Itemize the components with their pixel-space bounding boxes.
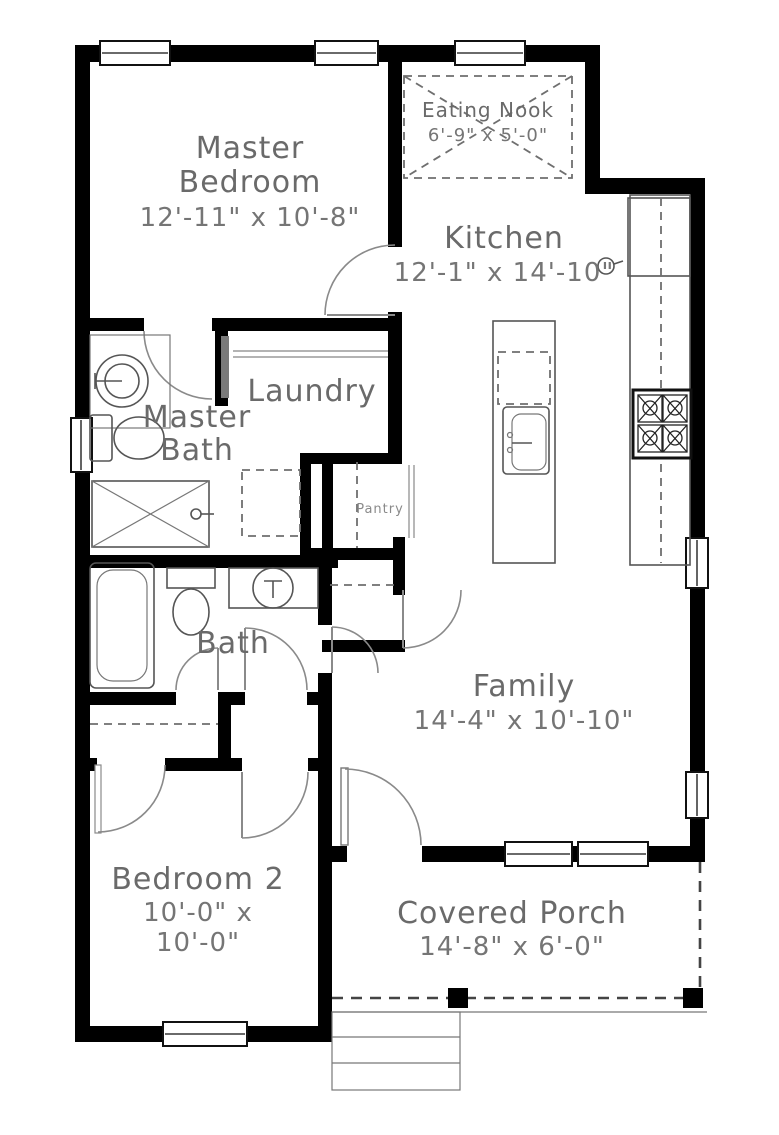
laundry-label: Laundry [247,374,376,409]
window [505,842,572,866]
master-bath-label: Master [143,400,251,435]
laundry-pocket-door [221,336,229,398]
room-labels: Master Bedroom 12'-11" x 10'-8" Eating N… [111,98,634,962]
master-bedroom-label-2: Bedroom [179,165,322,200]
kitchen-label: Kitchen [444,221,564,256]
kitchen-dims: 12'-1" x 14'-10" [394,258,615,288]
family-dims: 14'-4" x 10'-10" [414,706,635,736]
master-bedroom-label: Master [196,131,304,166]
porch-steps [332,1012,460,1090]
kitchen-island [493,321,555,563]
covered-porch-dims: 14'-8" x 6'-0" [419,932,605,962]
window [686,772,708,818]
bedroom2-closet-door [95,765,165,833]
bedroom2-entry-door [242,772,308,838]
family-label: Family [473,669,576,704]
bedroom-2-dims: 10'-0" x [143,898,253,928]
vanity-cabinet [167,568,215,588]
window [100,41,170,65]
master-bath-door [144,331,212,399]
master-bedroom-dims: 12'-11" x 10'-8" [140,203,361,233]
master-bedroom-door [325,245,395,315]
porch-post [683,988,703,1008]
bathtub-icon [90,563,154,688]
floor-plan-drawing: Master Bedroom 12'-11" x 10'-8" Eating N… [0,0,779,1135]
window [455,41,525,65]
bath-label: Bath [196,626,270,661]
window [578,842,648,866]
window [163,1022,247,1046]
eating-nook-dims: 6'-9" x 5'-0" [428,125,548,146]
master-bath-label-2: Bath [160,433,234,468]
eating-nook-label: Eating Nook [422,98,554,122]
shower-icon [92,481,214,547]
washer-dryer-space [242,470,300,536]
covered-porch-label: Covered Porch [397,896,627,931]
window [315,41,378,65]
floor-plan: Master Bedroom 12'-11" x 10'-8" Eating N… [0,0,779,1135]
island-sink-icon [503,407,549,474]
dishwasher-icon [498,352,550,404]
vanity-sink-icon [229,568,318,608]
coat-closet-door [403,590,461,648]
kitchen-counter [598,195,690,565]
porch-post [448,988,468,1008]
bedroom-2-label: Bedroom 2 [111,862,284,897]
window [71,418,92,472]
front-door [341,768,421,845]
bedroom-2-dims-2: 10'-0" [156,928,240,958]
range-stove-icon [633,390,691,458]
refrigerator-icon [628,198,690,276]
pantry-label: Pantry [356,502,404,517]
